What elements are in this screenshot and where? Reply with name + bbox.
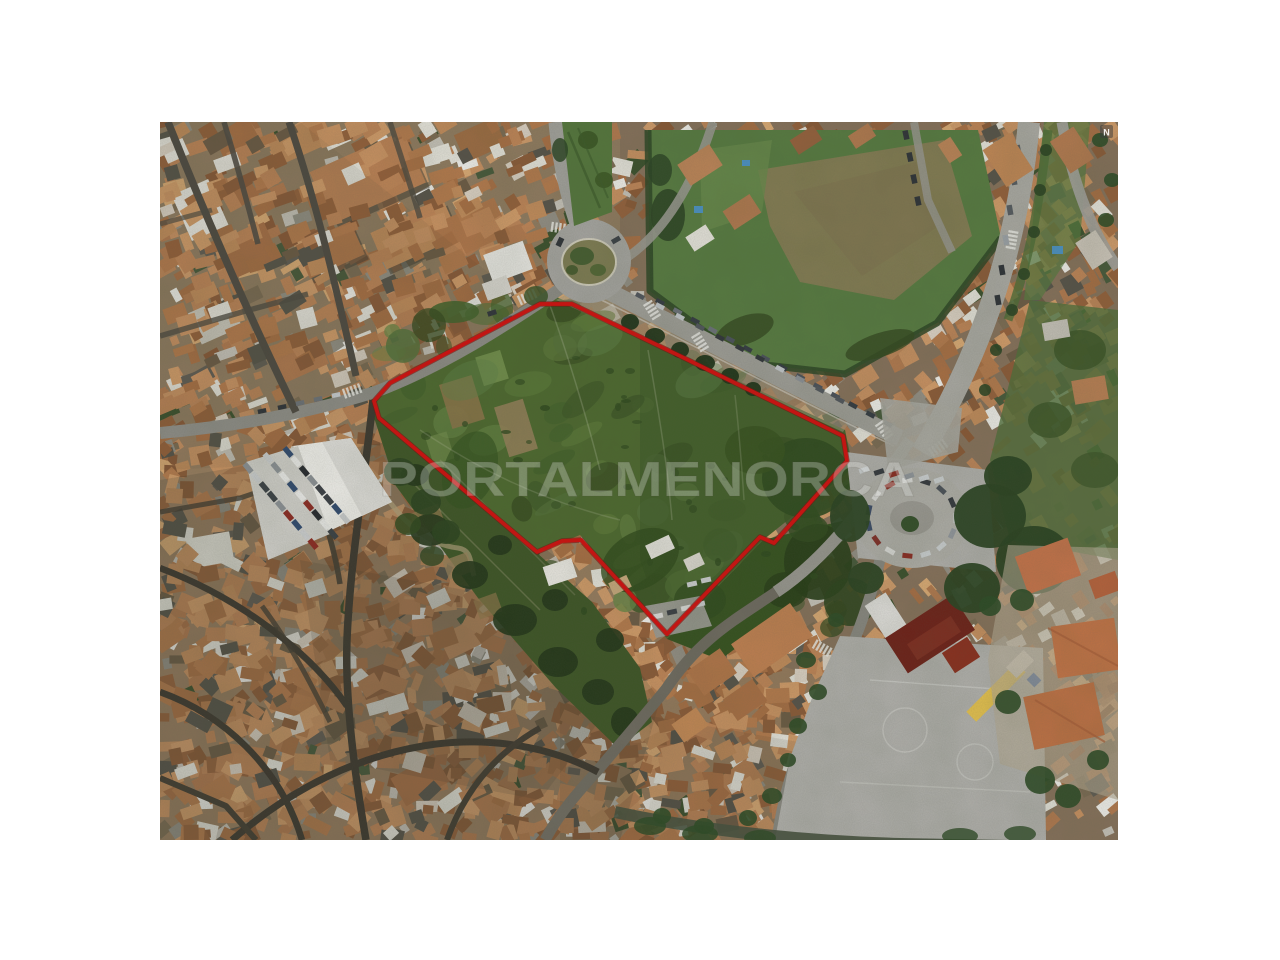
svg-text:N: N	[1103, 128, 1110, 138]
